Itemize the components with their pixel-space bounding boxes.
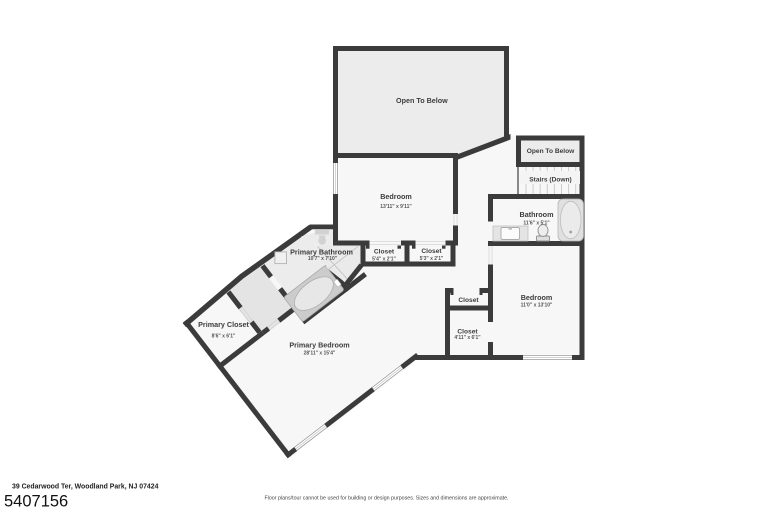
svg-text:8'6" x 6'1": 8'6" x 6'1" (212, 334, 236, 340)
svg-text:Stairs (Down): Stairs (Down) (529, 176, 572, 183)
svg-text:Closet: Closet (374, 249, 395, 256)
svg-text:Bedroom: Bedroom (521, 293, 553, 302)
svg-text:Open To Below: Open To Below (396, 96, 448, 105)
svg-text:4'11" x 6'1": 4'11" x 6'1" (454, 335, 481, 341)
svg-text:11'0" x 13'10": 11'0" x 13'10" (521, 303, 553, 309)
svg-text:5407156: 5407156 (4, 493, 68, 511)
svg-text:Bathroom: Bathroom (520, 210, 554, 219)
svg-text:5'4" x 2'1": 5'4" x 2'1" (372, 257, 396, 263)
svg-text:28'11" x 15'4": 28'11" x 15'4" (304, 351, 336, 357)
svg-text:Open To Below: Open To Below (527, 148, 575, 155)
svg-text:10'7" x 7'10": 10'7" x 7'10" (308, 256, 338, 262)
svg-text:Primary Bedroom: Primary Bedroom (289, 341, 349, 350)
svg-text:Closet: Closet (421, 248, 442, 255)
svg-text:13'11" x 9'11": 13'11" x 9'11" (380, 204, 412, 210)
svg-text:11'6" x 5'1": 11'6" x 5'1" (523, 221, 550, 227)
svg-text:39 Cedarwood Ter, Woodland Par: 39 Cedarwood Ter, Woodland Park, NJ 0742… (12, 484, 159, 491)
svg-text:5'3" x 2'1": 5'3" x 2'1" (420, 256, 444, 262)
svg-text:Closet: Closet (458, 297, 479, 304)
svg-text:Primary Closet: Primary Closet (198, 320, 249, 329)
svg-text:Bedroom: Bedroom (380, 192, 412, 201)
svg-text:Floor plans/tour cannot be use: Floor plans/tour cannot be used for buil… (264, 496, 508, 502)
